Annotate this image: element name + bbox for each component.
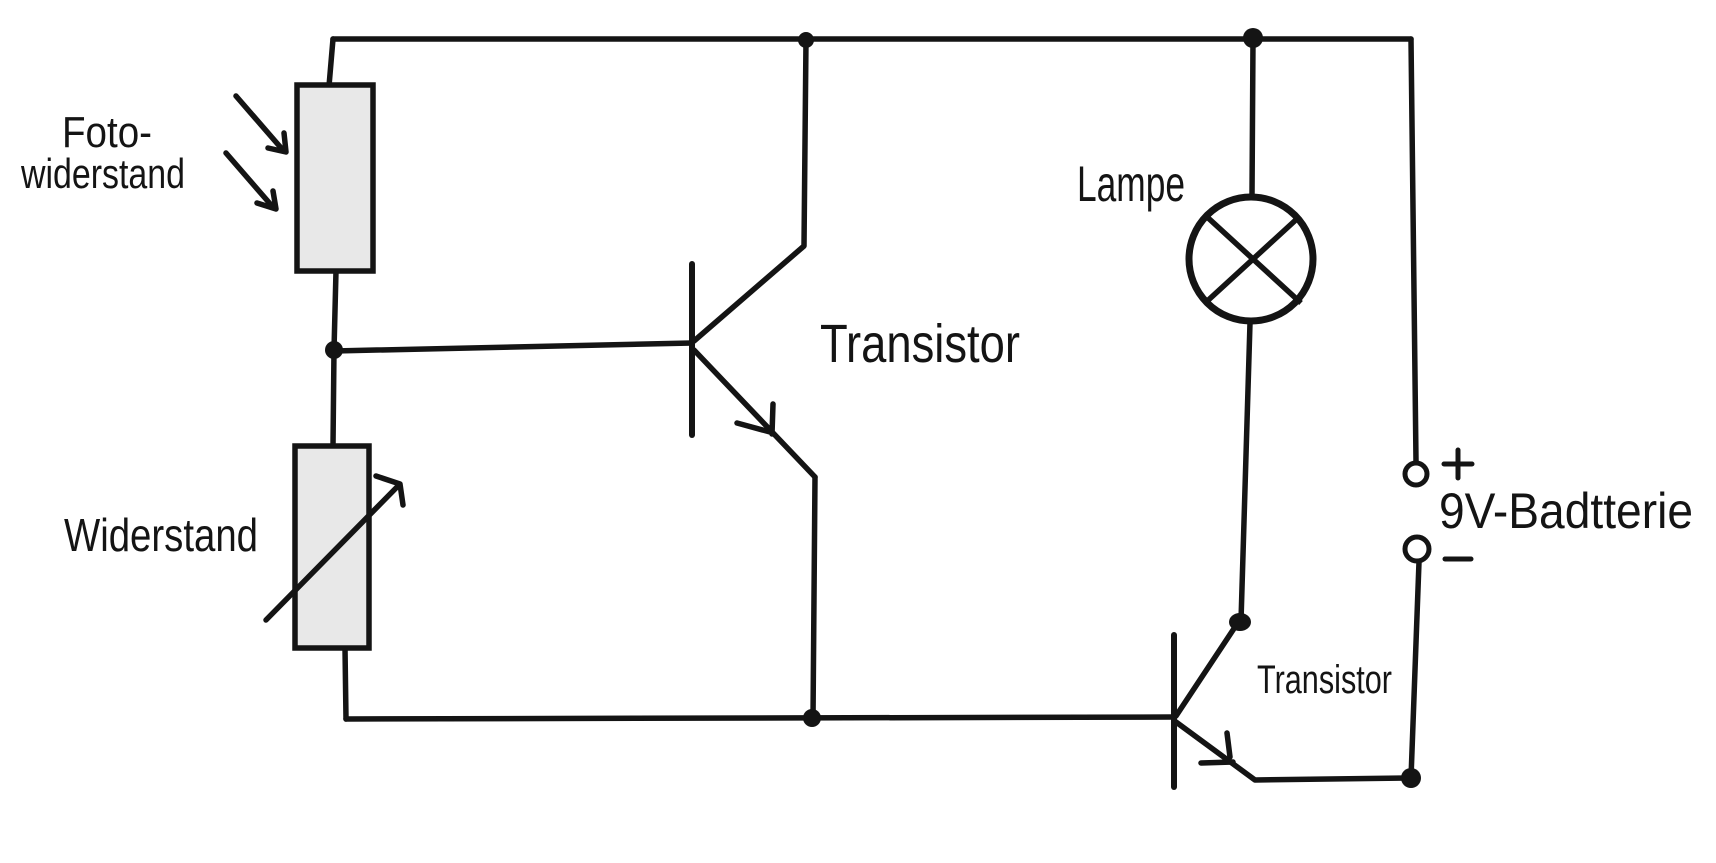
svg-text:widerstand: widerstand [20, 150, 185, 197]
svg-text:Transistor: Transistor [820, 314, 1020, 374]
svg-text:Lampe: Lampe [1077, 156, 1185, 212]
svg-text:Transistor: Transistor [1257, 658, 1392, 702]
svg-text:9V-Badtterie: 9V-Badtterie [1439, 483, 1693, 539]
svg-text:Widerstand: Widerstand [64, 509, 258, 561]
